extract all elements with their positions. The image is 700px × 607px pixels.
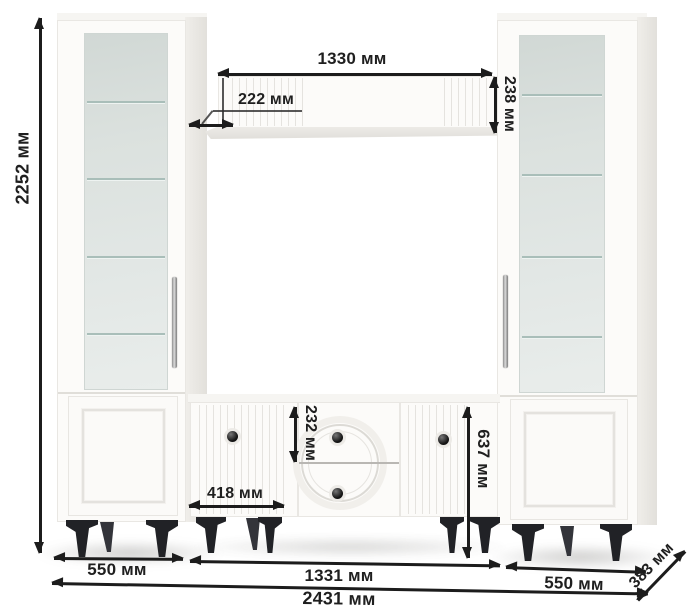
door-inset-frame — [524, 412, 615, 507]
dim-shelf-inset-extension — [222, 78, 224, 124]
dim-total-height-line — [39, 18, 42, 553]
dim-tv-stand-height-line — [467, 407, 470, 558]
dim-total-height-label: 2252 мм — [13, 131, 34, 204]
tv-stand-stile — [399, 403, 401, 516]
dim-total-width-label: 2431 мм — [302, 588, 375, 607]
wall-shelf-fluting-right — [438, 78, 490, 126]
left-cabinet-glass-door — [84, 33, 168, 390]
dim-tv-door-width-line — [189, 505, 284, 508]
dim-shelf-length-label: 1330 мм — [317, 49, 386, 69]
top-drawer-knob — [332, 432, 343, 443]
bottom-drawer-knob — [332, 488, 343, 499]
glass-shelf — [87, 333, 165, 335]
dim-tv-door-width-label: 418 мм — [207, 485, 263, 503]
dim-center-width-label: 1331 мм — [304, 566, 373, 586]
dim-shelf-inset-arrow — [189, 124, 233, 127]
dim-shelf-inset-underline — [213, 110, 302, 112]
right-cabinet-side-panel — [637, 17, 657, 525]
left-door-knob — [227, 431, 238, 442]
wall-shelf-bottom-lip — [205, 127, 497, 139]
dim-shelf-length-line — [218, 73, 492, 76]
tv-stand-right-door — [402, 405, 466, 514]
dim-shelf-height-line — [494, 77, 497, 133]
glass-shelf — [522, 256, 602, 258]
dim-shelf-inset-label: 222 мм — [238, 91, 294, 109]
right-door-knob — [438, 434, 449, 445]
drawer-divider — [299, 462, 399, 464]
dim-left-width-label: 550 мм — [87, 560, 146, 580]
glass-shelf — [522, 174, 602, 176]
right-cabinet-handle — [503, 275, 508, 368]
dim-tv-stand-height-label: 637 мм — [473, 429, 493, 488]
glass-shelf — [522, 94, 602, 96]
left-cabinet-bottom-door — [68, 396, 178, 516]
dim-shelf-height-label: 238 мм — [500, 76, 518, 132]
left-cabinet-handle — [172, 277, 177, 368]
right-cabinet-glass-door — [519, 35, 605, 393]
right-cabinet-divider — [498, 395, 637, 397]
left-cabinet-divider — [58, 392, 185, 394]
dim-drawer-height-label: 232 мм — [301, 405, 319, 461]
dim-drawer-height-line — [294, 407, 297, 462]
glass-shelf — [522, 336, 602, 338]
glass-shelf — [87, 101, 165, 103]
right-cabinet-bottom-door — [510, 399, 628, 520]
glass-shelf — [87, 256, 165, 258]
door-inset-frame — [82, 409, 165, 503]
glass-shelf — [87, 178, 165, 180]
furniture-dimension-diagram: 2252 мм 1330 мм 222 мм 238 мм 232 мм 637… — [0, 0, 700, 607]
